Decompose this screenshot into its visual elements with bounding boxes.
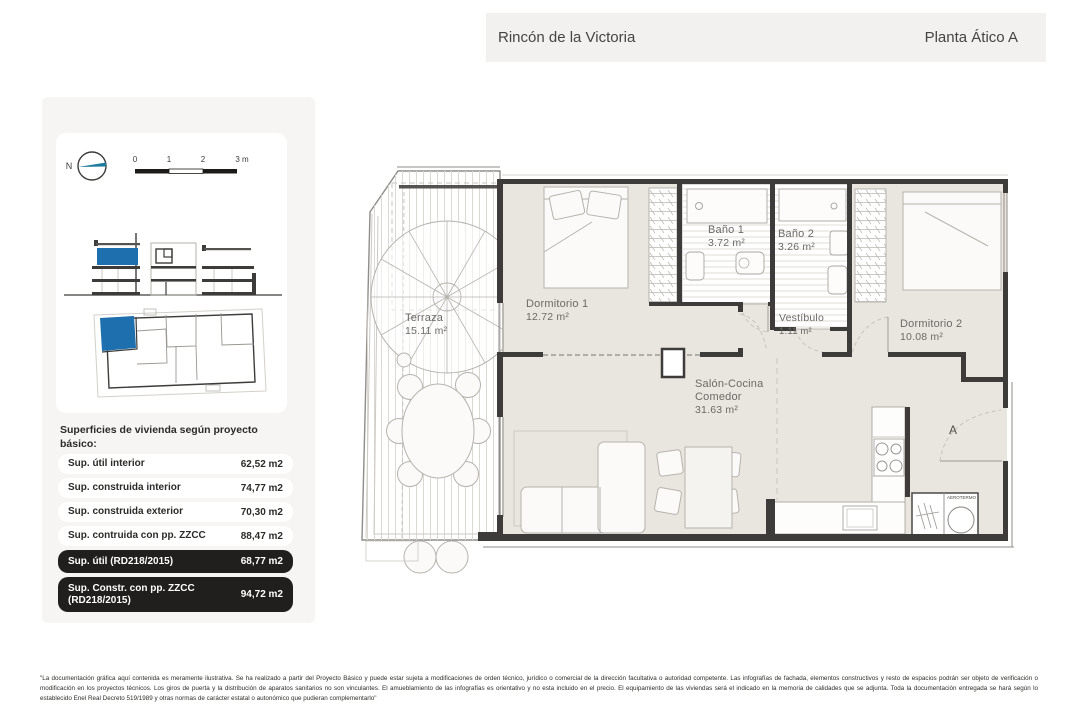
north-label: N xyxy=(66,161,73,171)
scale-tick-3: 3 m xyxy=(235,155,249,164)
legend-card: N 0 1 2 3 m xyxy=(56,133,287,413)
bed-dormitorio-1 xyxy=(544,187,628,288)
header-bar: Rincón de la Victoria Planta Ático A xyxy=(486,13,1046,62)
surface-row: Sup. contruida con pp. ZZCC 88,47 m2 xyxy=(58,526,293,546)
highlighted-unit-section xyxy=(97,248,138,265)
surface-value: 74,77 m2 xyxy=(241,483,283,494)
surface-label: Sup. útil (RD218/2015) xyxy=(68,556,173,568)
room-label-vestibulo: Vestíbulo 1.11 m² xyxy=(779,312,824,338)
surface-value: 88,47 m2 xyxy=(241,531,283,542)
scale-tick-2: 2 xyxy=(201,155,206,164)
bed-dormitorio-2 xyxy=(903,192,1001,290)
legal-disclaimer: "La documentación gráfica aquí contenida… xyxy=(40,674,1038,705)
surface-value: 94,72 m2 xyxy=(241,589,283,600)
room-label-dormitorio-1: Dormitorio 1 12.72 m² xyxy=(526,298,588,324)
sidebar-panel: N 0 1 2 3 m xyxy=(42,97,315,623)
room-label-terraza: Terraza 15.11 m² xyxy=(405,312,447,338)
scale-tick-0: 0 xyxy=(133,155,138,164)
bathroom-2 xyxy=(774,184,851,329)
project-location: Rincón de la Victoria xyxy=(498,29,635,46)
page-title: Planta Ático A xyxy=(925,29,1018,46)
scale-tick-1: 1 xyxy=(167,155,172,164)
entrance-letter: A xyxy=(949,423,957,437)
compass-icon: N xyxy=(66,152,106,180)
surfaces-heading: Superficies de vivienda según proyecto b… xyxy=(60,424,275,451)
room-label-bano-2: Baño 2 3.26 m² xyxy=(778,228,815,254)
floor-key-diagram xyxy=(94,309,266,397)
highlighted-unit-plan xyxy=(100,316,136,351)
surface-label: Sup. Constr. con pp. ZZCC (RD218/2015) xyxy=(68,583,223,606)
scale-bar: 0 1 2 3 m xyxy=(133,155,249,174)
surface-row: Sup. útil interior 62,52 m2 xyxy=(58,454,293,474)
surface-label: Sup. útil interior xyxy=(68,458,145,470)
plan-sheet-page: Rincón de la Victoria Planta Ático A N 0… xyxy=(0,0,1080,720)
surface-value: 62,52 m2 xyxy=(241,459,283,470)
room-label-dormitorio-2: Dormitorio 2 10.08 m² xyxy=(900,318,962,344)
aerotermo-label: AEROTERMO xyxy=(946,495,977,500)
surface-label: Sup. contruida con pp. ZZCC xyxy=(68,530,206,542)
surface-label: Sup. construida exterior xyxy=(68,506,183,518)
surface-value: 70,30 m2 xyxy=(241,507,283,518)
surface-value: 68,77 m2 xyxy=(241,556,283,567)
floor-plan: Terraza 15.11 m² Dormitorio 1 12.72 m² B… xyxy=(340,150,1030,580)
surface-row-highlight: Sup. útil (RD218/2015) 68,77 m2 xyxy=(58,550,293,573)
surface-row: Sup. construida interior 74,77 m2 xyxy=(58,478,293,498)
surface-label: Sup. construida interior xyxy=(68,482,181,494)
surface-row-highlight: Sup. Constr. con pp. ZZCC (RD218/2015) 9… xyxy=(58,577,293,612)
surface-row: Sup. construida exterior 70,30 m2 xyxy=(58,502,293,522)
floor-plan-drawing xyxy=(340,150,1030,580)
room-label-bano-1: Baño 1 3.72 m² xyxy=(708,224,745,250)
legend-graphics: N 0 1 2 3 m xyxy=(56,133,287,413)
surfaces-table: Sup. útil interior 62,52 m2 Sup. constru… xyxy=(58,454,293,616)
pillar xyxy=(662,349,684,377)
building-section-diagram xyxy=(64,233,282,295)
sink-icon xyxy=(843,506,877,530)
room-label-salon: Salón-Cocina Comedor 31.63 m² xyxy=(695,378,763,417)
